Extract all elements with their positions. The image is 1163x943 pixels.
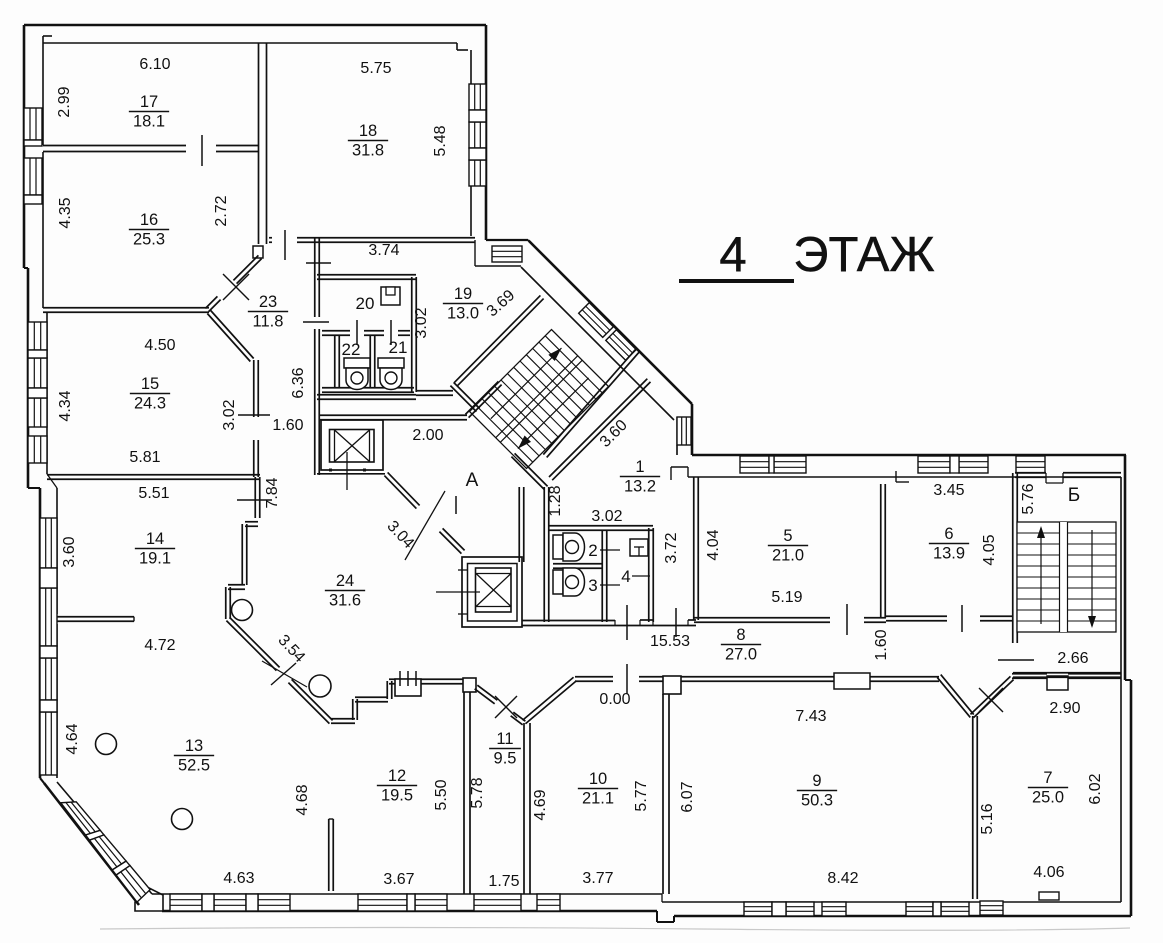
svg-text:4.35: 4.35	[57, 197, 74, 228]
svg-text:6.07: 6.07	[679, 781, 696, 812]
svg-text:1.75: 1.75	[488, 873, 519, 890]
svg-text:3.72: 3.72	[663, 532, 680, 563]
svg-text:5.81: 5.81	[129, 449, 160, 466]
svg-text:8: 8	[736, 626, 745, 644]
svg-text:7.84: 7.84	[264, 477, 281, 508]
svg-text:21.0: 21.0	[772, 547, 804, 565]
svg-text:21.1: 21.1	[582, 790, 614, 808]
svg-text:23: 23	[259, 293, 277, 311]
svg-text:31.6: 31.6	[329, 592, 361, 610]
svg-text:5.51: 5.51	[138, 485, 169, 502]
svg-text:5.77: 5.77	[633, 780, 650, 811]
svg-text:4.69: 4.69	[532, 789, 549, 820]
svg-text:2.99: 2.99	[56, 86, 73, 117]
svg-text:13.9: 13.9	[933, 545, 965, 563]
svg-text:9.5: 9.5	[494, 750, 517, 768]
svg-text:4.50: 4.50	[144, 337, 175, 354]
svg-text:3.02: 3.02	[591, 508, 622, 525]
svg-text:4.06: 4.06	[1033, 864, 1064, 881]
svg-text:3.60: 3.60	[61, 536, 78, 567]
svg-text:15.53: 15.53	[650, 633, 690, 650]
svg-text:13.2: 13.2	[624, 478, 656, 496]
svg-text:3.02: 3.02	[413, 307, 430, 338]
svg-text:6.36: 6.36	[290, 367, 307, 398]
svg-text:18: 18	[359, 122, 377, 140]
svg-text:4: 4	[719, 228, 746, 282]
svg-text:ЭТАЖ: ЭТАЖ	[793, 228, 934, 282]
svg-text:16: 16	[140, 211, 158, 229]
svg-text:5.48: 5.48	[432, 125, 449, 156]
svg-text:19: 19	[454, 285, 472, 303]
svg-text:3.67: 3.67	[383, 871, 414, 888]
svg-text:1.60: 1.60	[272, 417, 303, 434]
svg-text:52.5: 52.5	[178, 757, 210, 775]
svg-text:5.16: 5.16	[979, 803, 996, 834]
svg-text:3: 3	[588, 576, 597, 595]
svg-text:6.02: 6.02	[1087, 773, 1104, 804]
svg-text:10: 10	[589, 770, 607, 788]
svg-text:6.10: 6.10	[139, 56, 170, 73]
svg-text:2.66: 2.66	[1057, 650, 1088, 667]
svg-text:4.63: 4.63	[223, 870, 254, 887]
svg-text:11: 11	[496, 730, 513, 748]
svg-text:25.3: 25.3	[133, 231, 165, 249]
svg-text:5.19: 5.19	[771, 589, 802, 606]
svg-text:27.0: 27.0	[725, 646, 757, 664]
svg-text:0.00: 0.00	[599, 691, 630, 708]
svg-text:11.8: 11.8	[253, 313, 284, 331]
svg-text:20: 20	[356, 294, 375, 313]
svg-text:50.3: 50.3	[801, 792, 833, 810]
svg-text:21: 21	[389, 338, 408, 357]
svg-text:24: 24	[336, 572, 354, 590]
svg-text:5.75: 5.75	[360, 60, 391, 77]
svg-text:5.78: 5.78	[469, 777, 486, 808]
svg-text:24.3: 24.3	[134, 395, 166, 413]
svg-text:9: 9	[812, 772, 821, 790]
svg-text:17: 17	[140, 93, 158, 111]
svg-text:5.50: 5.50	[433, 779, 450, 810]
svg-text:4.04: 4.04	[705, 529, 722, 560]
svg-text:31.8: 31.8	[352, 142, 384, 160]
svg-text:4: 4	[621, 567, 630, 586]
svg-text:4.64: 4.64	[64, 723, 81, 754]
svg-text:13.0: 13.0	[447, 305, 479, 323]
svg-text:4.05: 4.05	[981, 534, 998, 565]
svg-text:1: 1	[635, 458, 644, 476]
svg-text:22: 22	[342, 340, 361, 359]
svg-text:12: 12	[388, 767, 406, 785]
svg-text:2.72: 2.72	[213, 195, 230, 226]
svg-text:Б: Б	[1068, 485, 1080, 506]
svg-text:7: 7	[1043, 769, 1052, 787]
svg-text:5.76: 5.76	[1020, 483, 1037, 514]
svg-text:25.0: 25.0	[1032, 789, 1064, 807]
svg-text:5: 5	[783, 527, 792, 545]
svg-text:13: 13	[185, 737, 203, 755]
svg-text:3.45: 3.45	[933, 482, 964, 499]
svg-text:4.34: 4.34	[57, 390, 74, 421]
svg-text:18.1: 18.1	[133, 113, 165, 131]
svg-text:8.42: 8.42	[827, 870, 858, 887]
svg-text:19.5: 19.5	[381, 787, 413, 805]
svg-text:2.90: 2.90	[1049, 700, 1080, 717]
svg-text:14: 14	[146, 530, 164, 548]
svg-text:2: 2	[588, 541, 597, 560]
svg-text:1.28: 1.28	[547, 485, 564, 516]
svg-text:A: A	[466, 470, 479, 491]
svg-text:3.77: 3.77	[582, 870, 613, 887]
svg-text:19.1: 19.1	[139, 550, 171, 568]
svg-text:15: 15	[141, 375, 159, 393]
svg-text:2.00: 2.00	[412, 427, 443, 444]
svg-text:1.60: 1.60	[873, 629, 890, 660]
svg-text:3.02: 3.02	[221, 399, 238, 430]
svg-text:7.43: 7.43	[795, 708, 826, 725]
svg-text:4.68: 4.68	[294, 784, 311, 815]
svg-text:4.72: 4.72	[144, 637, 175, 654]
svg-text:3.74: 3.74	[368, 242, 399, 259]
svg-text:6: 6	[944, 525, 953, 543]
